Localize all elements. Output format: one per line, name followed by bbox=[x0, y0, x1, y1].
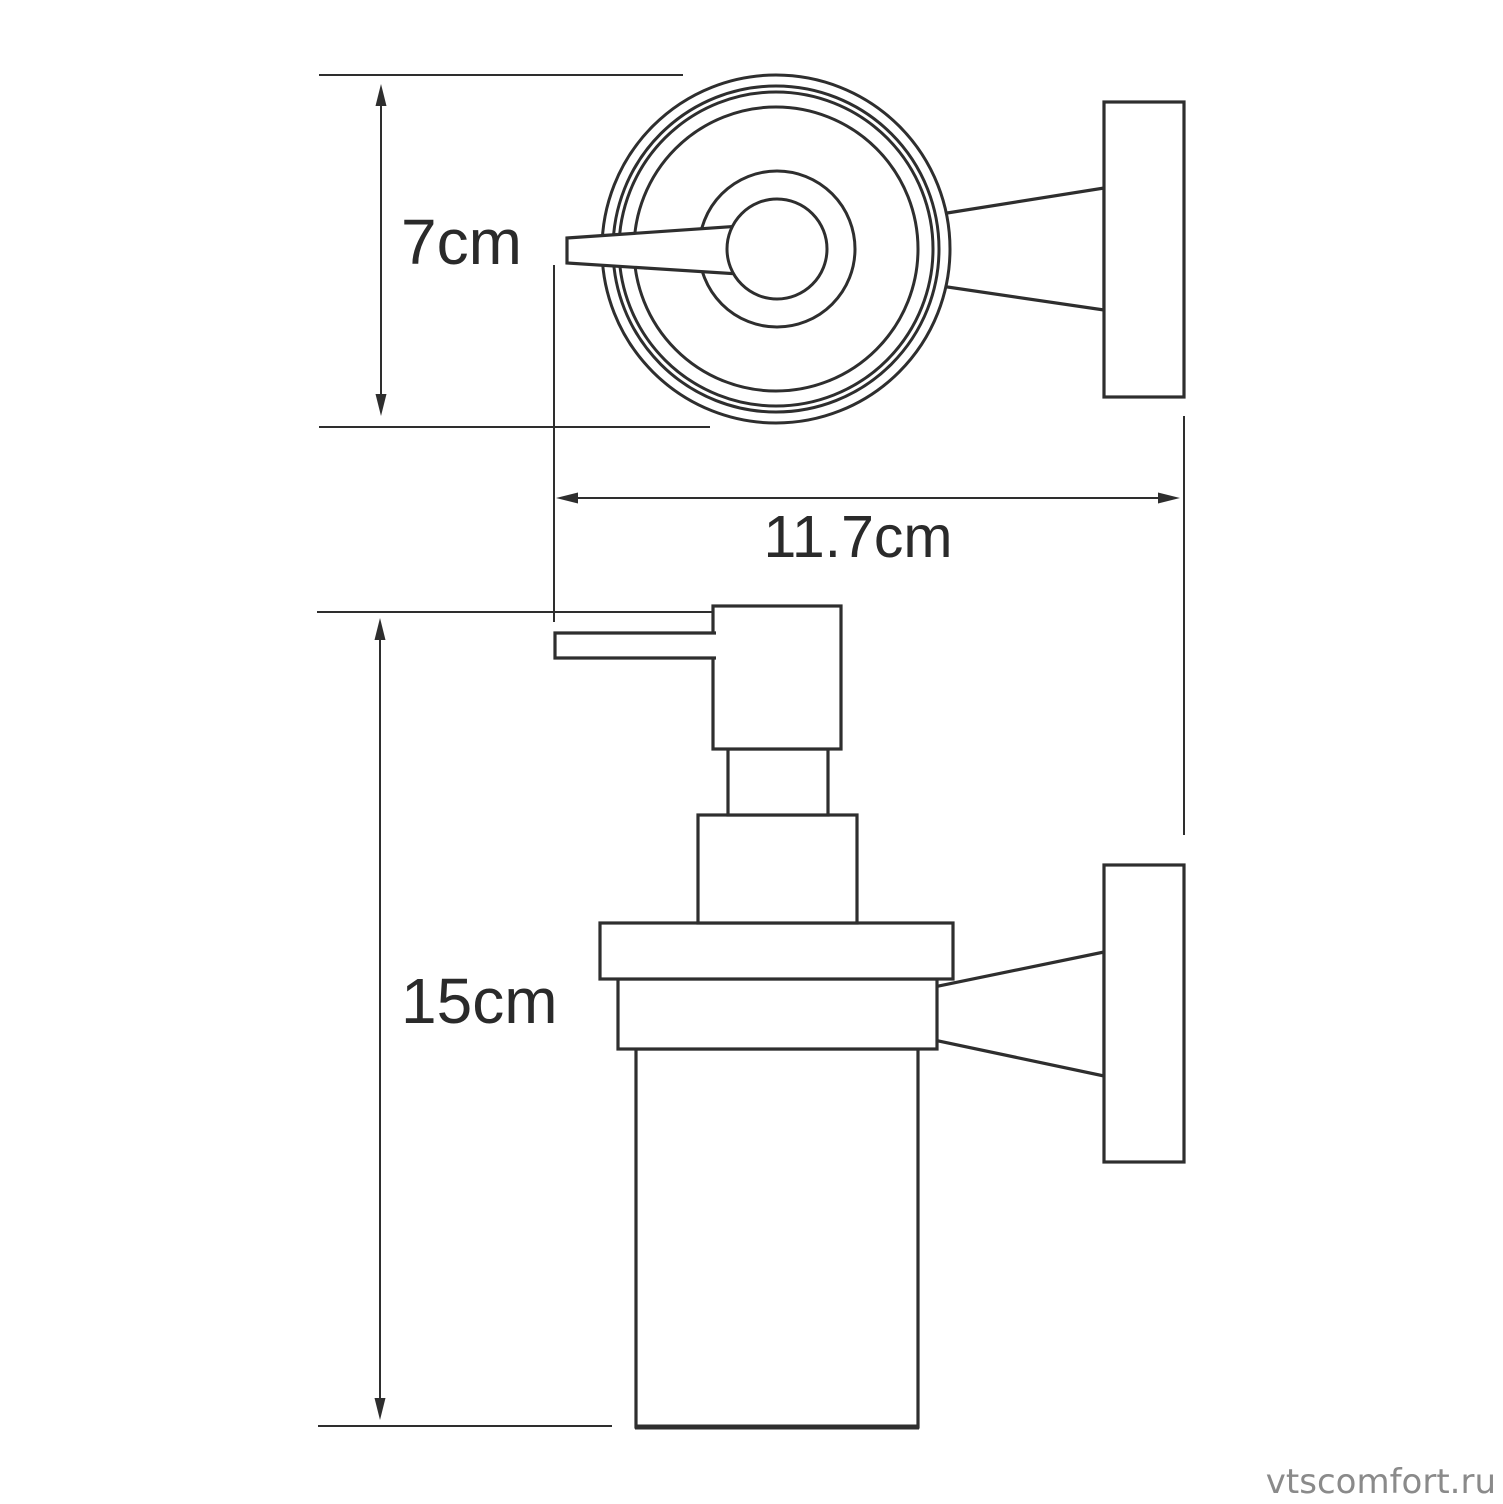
arrowhead-up-icon bbox=[375, 618, 386, 640]
mounting-cone-side-view bbox=[936, 952, 1104, 1076]
watermark: vtscomfort.ru bbox=[1266, 1462, 1496, 1502]
pump-head-circle bbox=[727, 199, 827, 299]
pump-neck bbox=[728, 749, 828, 815]
arrowhead-down-icon bbox=[375, 1398, 386, 1420]
dispenser-bottle bbox=[636, 1049, 918, 1427]
arrowhead-right-icon bbox=[1158, 493, 1180, 504]
side-view bbox=[555, 606, 1184, 1427]
soap-dispenser-technical-drawing: 7cm 11.7cm 15cm bbox=[0, 0, 1503, 1504]
arrowhead-down-icon bbox=[376, 394, 387, 416]
dimension-label-15cm: 15cm bbox=[401, 965, 558, 1037]
spout-side-view bbox=[555, 633, 716, 658]
pump-head-side-view bbox=[713, 606, 841, 749]
dimension-label-11-7cm: 11.7cm bbox=[763, 504, 952, 570]
pump-collar-side-view bbox=[698, 815, 857, 923]
wall-plate-top-view bbox=[1104, 102, 1184, 397]
top-view bbox=[567, 75, 1184, 423]
mounting-cone-top-view bbox=[944, 188, 1104, 310]
technical-drawing-page: 7cm 11.7cm 15cm bbox=[0, 0, 1503, 1504]
wall-plate-side-view bbox=[1104, 865, 1184, 1162]
holder-ring-body bbox=[618, 979, 937, 1049]
holder-ring-flange bbox=[600, 923, 953, 979]
arrowhead-up-icon bbox=[376, 84, 387, 106]
arrowhead-left-icon bbox=[556, 493, 578, 504]
dimension-label-7cm: 7cm bbox=[401, 206, 522, 278]
